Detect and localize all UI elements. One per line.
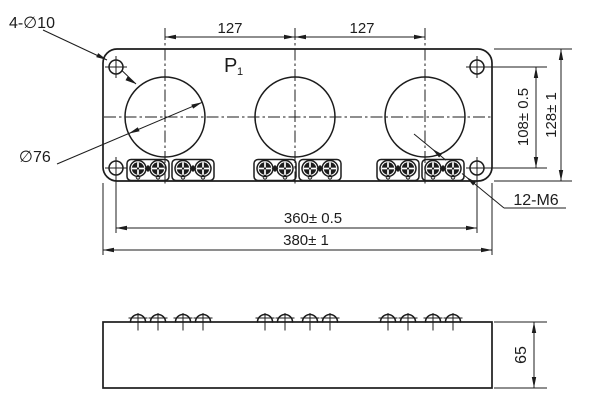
arrowhead [532, 322, 536, 333]
dim-pitch-right-group: 127 [295, 20, 425, 39]
primary-terminal-label: P 1 [224, 55, 243, 78]
dim-body-height-group: 65 [494, 322, 547, 388]
corner-hole-top-right [466, 56, 488, 78]
arrowhead [414, 35, 425, 39]
dim-pitch-left-group: 127 [165, 20, 295, 39]
corner-hole-top-left [105, 56, 127, 78]
dim-plate-height-group: 128± 1 [494, 49, 572, 181]
corner-hole-bottom-left [105, 157, 127, 179]
dim-pitch-left: 127 [217, 20, 242, 37]
dim-mount-spacing-group: 360± 0.5 [116, 176, 477, 233]
dim-body-height: 65 [513, 346, 530, 364]
dim-mount-spacing: 360± 0.5 [284, 210, 342, 227]
dim-plate-width: 380± 1 [283, 232, 329, 249]
body-outline [103, 322, 492, 388]
dim-plate-height: 128± 1 [543, 92, 560, 138]
label-circle-dia: ∅76 [19, 149, 51, 166]
annotations: 127 127 4-∅10 ∅76 P 1 [9, 15, 572, 255]
label-corner-holes: 4-∅10 [9, 15, 55, 32]
transformer-dimension-drawing: 127 127 4-∅10 ∅76 P 1 [0, 0, 600, 415]
arrowhead [559, 170, 563, 181]
arrowhead [559, 49, 563, 60]
arrowhead [295, 35, 306, 39]
arrowhead [284, 35, 295, 39]
arrowhead [534, 157, 538, 168]
label-p-subscript: 1 [237, 66, 243, 78]
arrowhead [116, 226, 127, 230]
arrowhead [191, 102, 202, 108]
arrowhead [481, 248, 492, 252]
technical-drawing-canvas: 127 127 4-∅10 ∅76 P 1 [0, 0, 600, 415]
label-p: P [224, 55, 237, 77]
terminal-block-1 [127, 160, 169, 181]
arrowhead [532, 377, 536, 388]
dim-hole-spacing-group: 108± 0.5 [485, 67, 547, 168]
dim-hole-spacing: 108± 0.5 [515, 88, 532, 146]
arrowhead [129, 127, 140, 133]
arrowhead [126, 76, 137, 84]
arrowhead [103, 248, 114, 252]
arrowhead [466, 226, 477, 230]
label-thread: 12-M6 [513, 192, 558, 209]
arrowhead [165, 35, 176, 39]
terminal-block-6 [422, 160, 464, 181]
top-view [103, 28, 492, 186]
terminal-block-2 [172, 160, 214, 181]
terminal-block-4 [299, 160, 341, 181]
terminal-block-3 [254, 160, 296, 181]
arrowhead [534, 67, 538, 78]
corner-hole-bottom-right [466, 157, 488, 179]
side-view: 65 [103, 313, 547, 388]
terminal-block-5 [377, 160, 419, 181]
dim-pitch-right: 127 [349, 20, 374, 37]
